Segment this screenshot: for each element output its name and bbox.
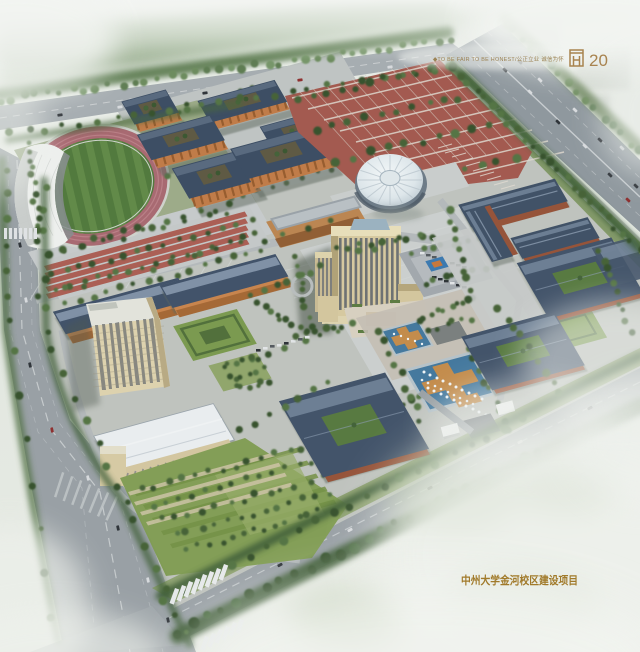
svg-text:◆TO BE FAIR TO BE HONEST/公正立业: ◆TO BE FAIR TO BE HONEST/公正立业 诚信为怀 bbox=[433, 55, 564, 63]
svg-text:中州大学金河校区建设项目: 中州大学金河校区建设项目 bbox=[461, 573, 578, 587]
svg-text:20: 20 bbox=[589, 51, 608, 70]
